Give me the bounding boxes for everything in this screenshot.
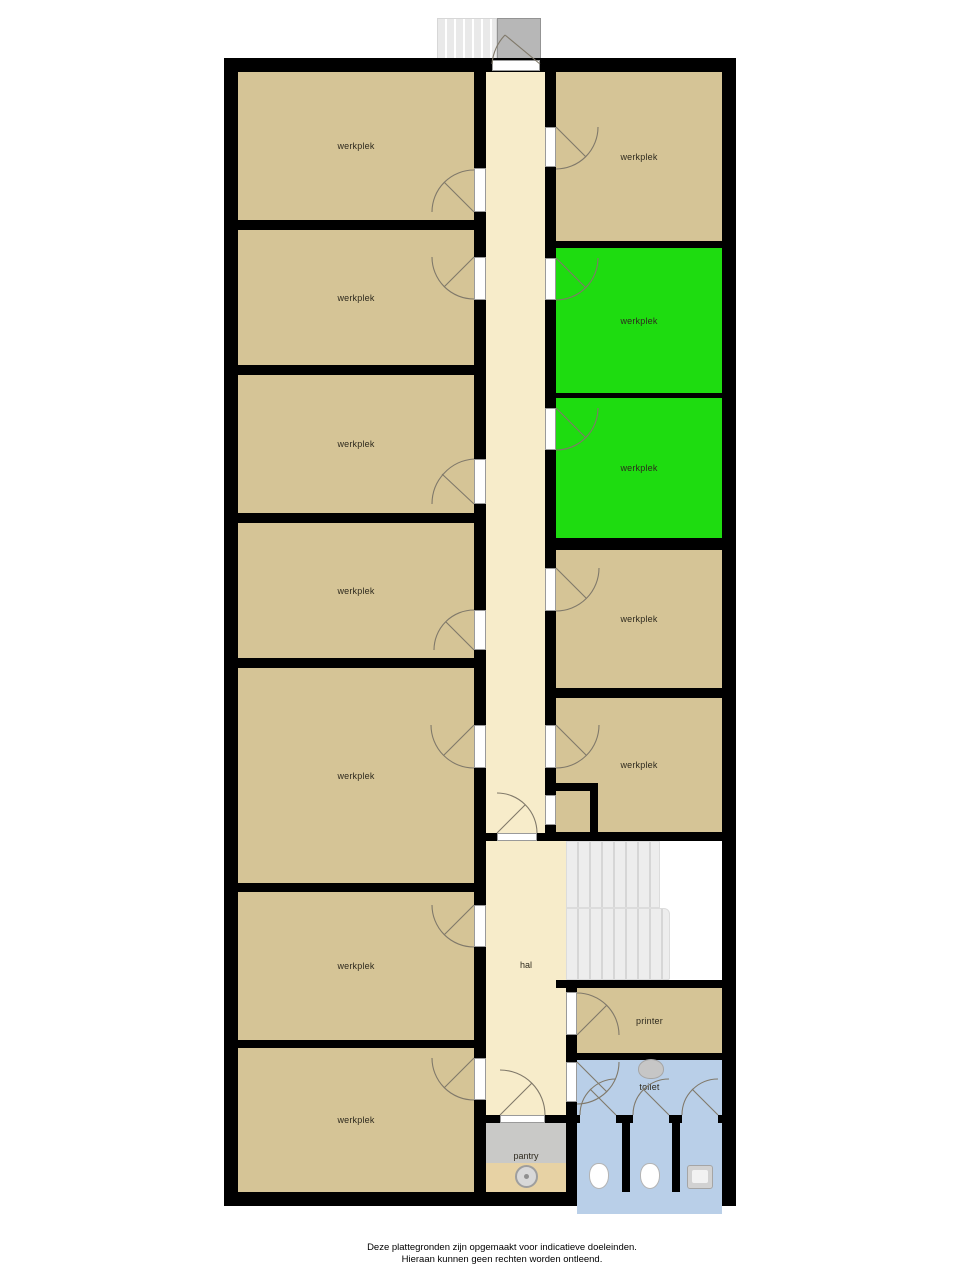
room-werkplek-highlighted-2: werkplek: [556, 398, 722, 538]
hall: [486, 72, 545, 1115]
room-werkplek-right-3: werkplek: [556, 698, 722, 832]
door: [474, 257, 486, 300]
room-label: werkplek: [337, 1115, 374, 1125]
closet-wall-vertical: [590, 790, 598, 833]
room-label: werkplek: [620, 614, 657, 624]
room-label: werkplek: [620, 316, 657, 326]
room-label: werkplek: [620, 463, 657, 473]
stairs-lower-flight-icon: [566, 908, 670, 980]
door: [545, 568, 556, 611]
door: [474, 905, 486, 947]
wall-printer-toilet: [566, 1053, 722, 1060]
room-toilet: toilet: [577, 1060, 722, 1214]
door: [545, 127, 556, 167]
entrance-door: [492, 60, 540, 71]
door: [474, 610, 486, 650]
stall-divider-2: [672, 1123, 680, 1192]
door: [545, 725, 556, 768]
hall-label: hal: [498, 960, 554, 970]
door: [474, 168, 486, 212]
hall-door: [497, 833, 537, 841]
door: [474, 725, 486, 768]
room-werkplek-left-4: werkplek: [238, 523, 474, 658]
room-label: werkplek: [337, 293, 374, 303]
stall-door-opening-1: [580, 1115, 616, 1123]
closet-door: [545, 795, 556, 825]
room-werkplek-highlighted-1: werkplek: [556, 248, 722, 393]
room-werkplek-left-7: werkplek: [238, 1048, 474, 1192]
stall-door-opening-3: [682, 1115, 718, 1123]
room-label: werkplek: [337, 141, 374, 151]
door: [545, 408, 556, 450]
room-label: werkplek: [620, 152, 657, 162]
entrance-stairs-icon: [437, 18, 497, 60]
room-werkplek-left-3: werkplek: [238, 375, 474, 513]
floorplan-canvas: werkplek werkplek werkplek werkplek werk…: [0, 0, 960, 1280]
room-label: werkplek: [620, 760, 657, 770]
toilet-icon: [589, 1163, 609, 1189]
washbasin-icon: [638, 1059, 664, 1079]
pantry-door: [500, 1115, 545, 1123]
room-werkplek-left-1: werkplek: [238, 72, 474, 220]
door: [545, 258, 556, 300]
urinal-icon: [687, 1165, 713, 1189]
room-werkplek-right-2: werkplek: [556, 550, 722, 688]
room-label: printer: [636, 1016, 663, 1026]
disclaimer-line-1: Deze plattegronden zijn opgemaakt voor i…: [42, 1242, 960, 1254]
stairs-upper-flight-icon: [566, 841, 660, 908]
stall-divider-1: [622, 1123, 630, 1192]
hall-lower-extension: [545, 841, 566, 1115]
room-werkplek-left-6: werkplek: [238, 892, 474, 1040]
room-label: werkplek: [337, 771, 374, 781]
door: [566, 992, 577, 1035]
stall-door-opening-2: [633, 1115, 669, 1123]
room-werkplek-left-5: werkplek: [238, 668, 474, 883]
room-printer: printer: [577, 988, 722, 1053]
room-werkplek-left-2: werkplek: [238, 230, 474, 365]
disclaimer-line-2: Hieraan kunnen geen rechten worden ontle…: [42, 1254, 960, 1266]
door: [566, 1062, 577, 1102]
room-label: toilet: [639, 1082, 659, 1092]
room-label: werkplek: [337, 439, 374, 449]
door: [474, 459, 486, 504]
pantry-label: pantry: [486, 1151, 566, 1161]
toilet-icon: [640, 1163, 660, 1189]
entrance-landing: [497, 18, 541, 62]
room-label: werkplek: [337, 961, 374, 971]
room-werkplek-right-1: werkplek: [556, 72, 722, 241]
pantry-sink-icon: [515, 1165, 538, 1188]
disclaimer: Deze plattegronden zijn opgemaakt voor i…: [42, 1242, 960, 1266]
room-label: werkplek: [337, 586, 374, 596]
door: [474, 1058, 486, 1100]
wall-stairs-printer: [556, 980, 722, 988]
